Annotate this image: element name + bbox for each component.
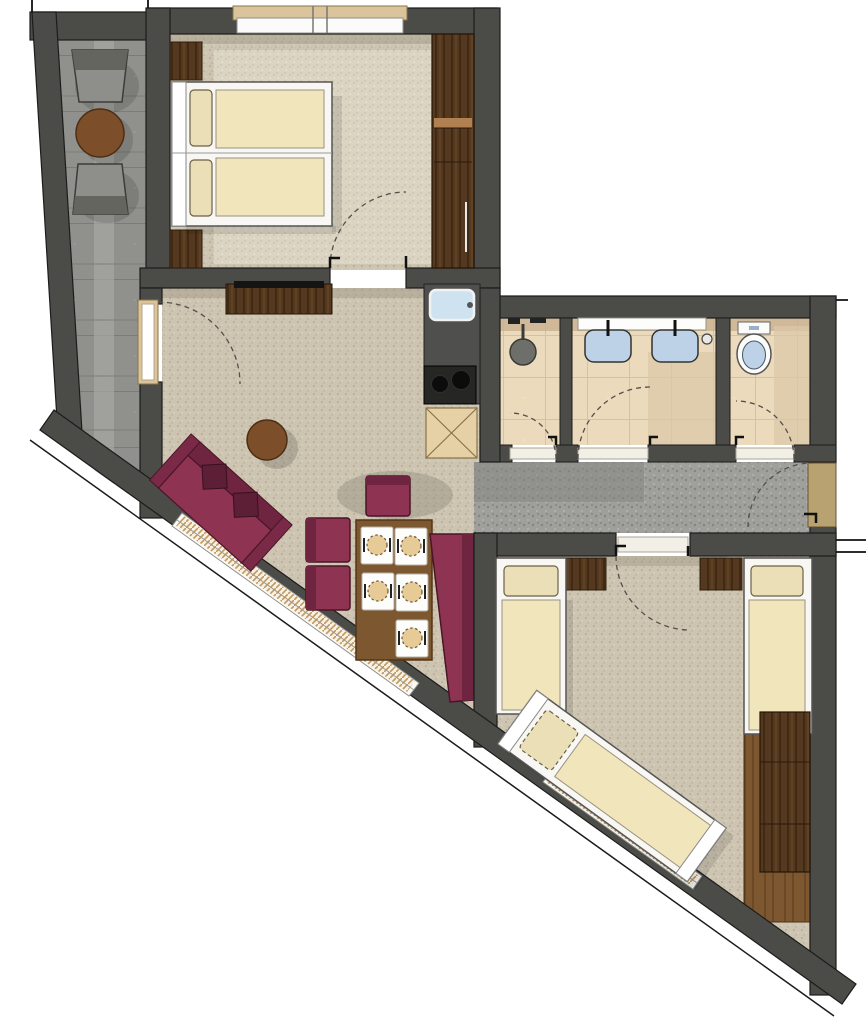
plate-4 bbox=[402, 582, 422, 602]
shower-fixture-1 bbox=[508, 318, 520, 324]
shower-floor bbox=[500, 318, 560, 445]
wall-bedroom1-left bbox=[146, 8, 170, 270]
nightstand-1 bbox=[170, 42, 202, 80]
wall-bath-west bbox=[480, 288, 500, 462]
chair-west-1-back bbox=[306, 518, 316, 562]
bathroom-mirror bbox=[578, 318, 706, 330]
plate-2 bbox=[401, 536, 421, 556]
balcony-table bbox=[76, 109, 124, 157]
nightstand-3 bbox=[566, 558, 606, 590]
shower-head bbox=[510, 339, 536, 365]
wardrobe-1 bbox=[432, 34, 474, 268]
shower-fixture-2 bbox=[530, 318, 546, 323]
shapes-root bbox=[0, 0, 868, 1024]
coffee-table bbox=[247, 420, 287, 460]
bed1-mattress-2 bbox=[216, 158, 324, 216]
wardrobe-1-shelf bbox=[434, 118, 472, 128]
balcony-chair-2-back bbox=[73, 196, 128, 214]
wall-right-upper bbox=[810, 296, 836, 463]
hallway-shade bbox=[474, 462, 644, 502]
bed1-pillow-1 bbox=[190, 90, 212, 146]
chair-north-back bbox=[366, 476, 410, 485]
shower-threshold bbox=[510, 448, 556, 459]
nightstand-4 bbox=[700, 558, 742, 590]
wall-right-lower bbox=[810, 527, 836, 995]
bedroom2-threshold bbox=[618, 537, 688, 552]
bed2-left-mattress bbox=[502, 600, 560, 710]
balcony-door-glass bbox=[142, 304, 154, 380]
bed1-mattress-1 bbox=[216, 90, 324, 148]
wc-floor-shade bbox=[774, 326, 812, 445]
sink-faucet bbox=[467, 302, 473, 308]
plate-3 bbox=[368, 581, 388, 601]
chair-west-2-back bbox=[306, 566, 316, 610]
plate-1 bbox=[367, 535, 387, 555]
tv bbox=[234, 281, 324, 288]
bathroom-threshold bbox=[578, 448, 648, 459]
entry-door bbox=[808, 463, 836, 527]
floor-plan-canvas bbox=[0, 0, 868, 1024]
wall-bath-south-2 bbox=[556, 445, 578, 462]
cosmetic-mirror bbox=[702, 334, 712, 344]
sofa-pillow-2 bbox=[233, 492, 258, 517]
bed1-headboard bbox=[172, 82, 186, 226]
bed1-shadow-right bbox=[332, 96, 342, 232]
wall-bath-south-4 bbox=[794, 445, 836, 462]
nightstand-2 bbox=[170, 230, 202, 268]
stove-burner-1 bbox=[432, 376, 449, 393]
bed1-pillow-2 bbox=[190, 160, 212, 216]
floor-plan-page bbox=[0, 0, 868, 1024]
bathroom-floor-shade bbox=[648, 352, 716, 445]
bed2-right-pillow bbox=[751, 566, 803, 596]
bed2-left-shadow bbox=[566, 600, 573, 716]
wall-bath-top bbox=[497, 296, 836, 318]
bed1-shadow-bottom bbox=[186, 226, 336, 234]
dining-bench-back bbox=[462, 534, 473, 701]
wall-bedroom1-right bbox=[474, 8, 500, 296]
wall-bath-wc-divider bbox=[716, 318, 730, 448]
wardrobe-2 bbox=[760, 712, 810, 872]
balcony-chair-1-back bbox=[72, 50, 128, 70]
wall-shower-bath-divider bbox=[560, 318, 572, 448]
window-bedroom1-glass bbox=[237, 18, 403, 33]
wc-threshold bbox=[736, 448, 794, 459]
wc-seat bbox=[743, 341, 766, 369]
sideboard bbox=[226, 284, 332, 314]
bedroom1-wall-shadow bbox=[170, 34, 474, 44]
wall-bath-south-3 bbox=[648, 445, 736, 462]
bed2-left-pillow bbox=[504, 566, 558, 596]
wc-button bbox=[749, 326, 759, 330]
sofa-pillow-1 bbox=[202, 464, 227, 489]
bed2-right-mattress bbox=[749, 600, 805, 730]
plate-5 bbox=[402, 628, 422, 648]
wall-hall-south-east bbox=[690, 533, 836, 556]
stove-burner-2 bbox=[452, 371, 471, 390]
